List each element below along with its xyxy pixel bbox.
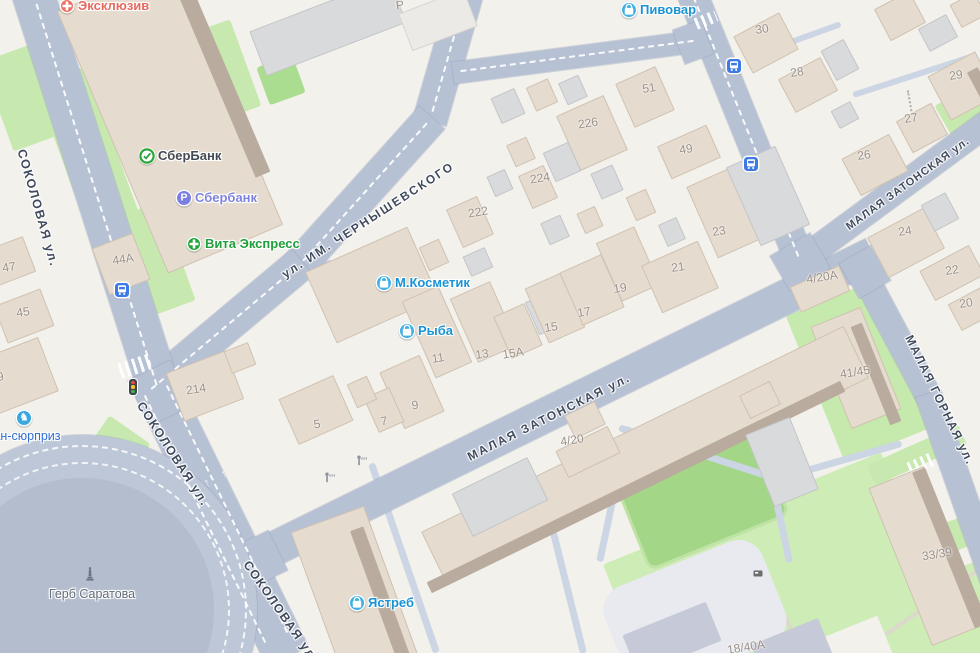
parking-icon[interactable]: Р [176,190,193,207]
poi-label[interactable]: СберБанк [158,148,221,163]
traffic-light-icon [129,379,137,395]
monument-icon[interactable] [84,567,101,584]
map-canvas[interactable]: ↑↑↑ СОКОЛОВАЯ ул.СОКОЛОВАЯ ул.СОКОЛОВАЯ … [0,0,980,653]
bag-icon[interactable] [349,595,366,612]
bus-stop-icon[interactable] [727,59,741,73]
bag-icon[interactable] [376,275,393,292]
barrier-icon [752,566,764,578]
poi-label[interactable]: Ястреб [368,595,414,610]
poi-label[interactable]: Пивовар [640,2,696,17]
horse-icon[interactable]: ♞ [16,410,33,427]
poi-label[interactable]: Герб Саратова [49,587,135,601]
poi-label[interactable]: Эксклюзив [78,0,149,13]
cross-icon[interactable] [60,0,75,14]
poi-label[interactable]: ан-сюрприз [0,429,61,443]
barrier-icon [323,471,335,483]
poi-label[interactable]: Рыба [418,323,453,338]
bag-icon[interactable] [621,2,638,19]
poi-label[interactable]: Вита Экспресс [205,236,300,251]
cross-icon[interactable] [187,237,202,252]
bus-stop-icon[interactable] [115,283,129,297]
bag-icon[interactable] [399,323,416,340]
bus-stop-icon[interactable] [744,157,758,171]
icons-layer: ЭксклюзивСберБанкРСбербанкВита ЭкспрессМ… [0,0,980,653]
poi-label[interactable]: М.Косметик [395,275,470,290]
sber-icon[interactable] [139,148,156,165]
poi-label[interactable]: Сбербанк [195,190,257,205]
barrier-icon [355,454,367,466]
